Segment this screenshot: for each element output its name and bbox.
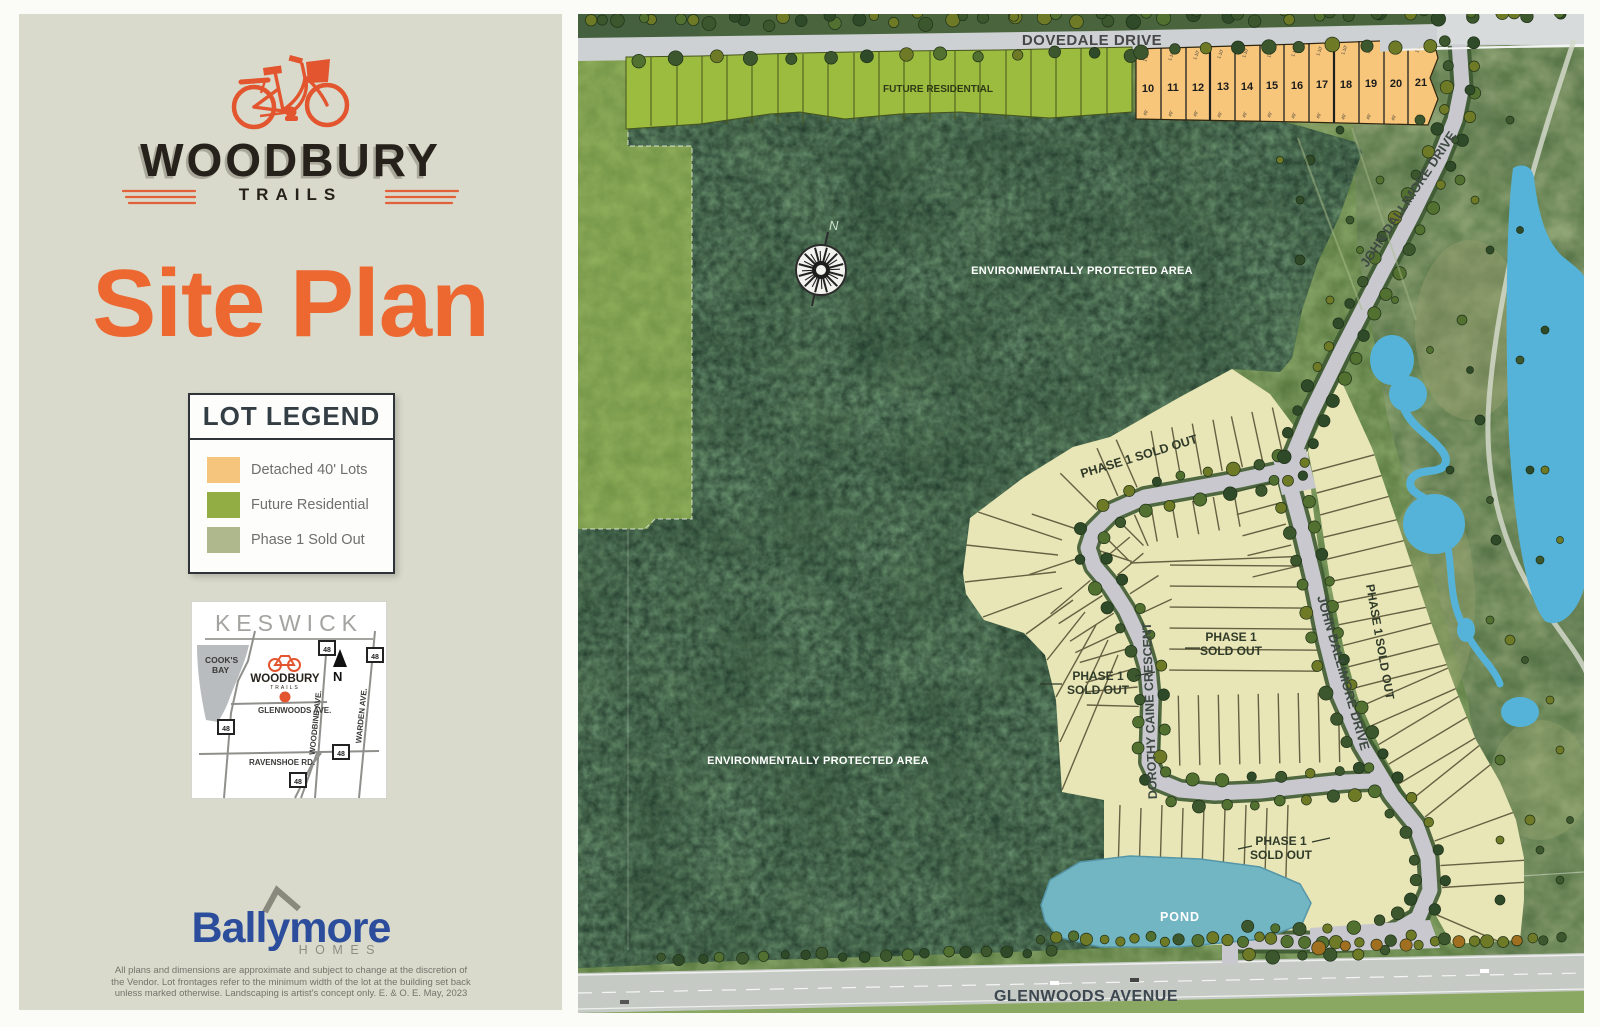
svg-text:N: N — [333, 669, 342, 684]
svg-text:14: 14 — [1241, 81, 1254, 93]
svg-text:ENVIRONMENTALLY PROTECTED AREA: ENVIRONMENTALLY PROTECTED AREA — [971, 265, 1193, 277]
svg-text:DOVEDALE DRIVE: DOVEDALE DRIVE — [1022, 32, 1162, 49]
svg-text:48: 48 — [323, 647, 331, 654]
svg-text:19: 19 — [1365, 78, 1377, 90]
svg-text:ENVIRONMENTALLY PROTECTED AREA: ENVIRONMENTALLY PROTECTED AREA — [707, 755, 929, 767]
svg-text:48: 48 — [294, 779, 302, 786]
svg-text:PHASE 1: PHASE 1 — [1072, 669, 1124, 683]
svg-text:13: 13 — [1217, 81, 1229, 93]
svg-text:10: 10 — [1142, 83, 1154, 95]
svg-text:FUTURE RESIDENTIAL: FUTURE RESIDENTIAL — [883, 84, 993, 95]
svg-text:SOLD OUT: SOLD OUT — [1067, 683, 1130, 697]
svg-text:POND: POND — [1160, 910, 1200, 924]
svg-text:PHASE 1: PHASE 1 — [1205, 630, 1257, 644]
svg-text:KESWICK: KESWICK — [215, 610, 363, 636]
svg-text:15: 15 — [1266, 80, 1278, 92]
svg-text:21: 21 — [1415, 77, 1427, 89]
svg-text:TRAILS: TRAILS — [270, 685, 300, 691]
svg-text:20: 20 — [1390, 78, 1402, 90]
svg-text:GLENWOODS AVENUE: GLENWOODS AVENUE — [994, 988, 1178, 1005]
svg-text:WOODBURY: WOODBURY — [250, 673, 320, 685]
svg-text:N: N — [829, 218, 839, 233]
svg-text:HOMES: HOMES — [299, 943, 382, 957]
svg-text:COOK'S: COOK'S — [205, 655, 239, 665]
svg-text:48: 48 — [371, 654, 379, 661]
svg-text:17: 17 — [1316, 79, 1328, 91]
svg-text:48: 48 — [337, 751, 345, 758]
svg-text:11: 11 — [1167, 82, 1179, 94]
svg-text:16: 16 — [1291, 80, 1303, 92]
svg-text:48: 48 — [222, 726, 230, 733]
svg-text:SOLD OUT: SOLD OUT — [1250, 848, 1313, 862]
svg-text:SOLD OUT: SOLD OUT — [1200, 644, 1263, 658]
svg-text:PHASE 1: PHASE 1 — [1255, 834, 1307, 848]
svg-text:18: 18 — [1340, 79, 1352, 91]
svg-text:12: 12 — [1192, 82, 1204, 94]
svg-text:BAY: BAY — [212, 665, 229, 675]
svg-text:RAVENSHOE RD.: RAVENSHOE RD. — [249, 758, 315, 767]
